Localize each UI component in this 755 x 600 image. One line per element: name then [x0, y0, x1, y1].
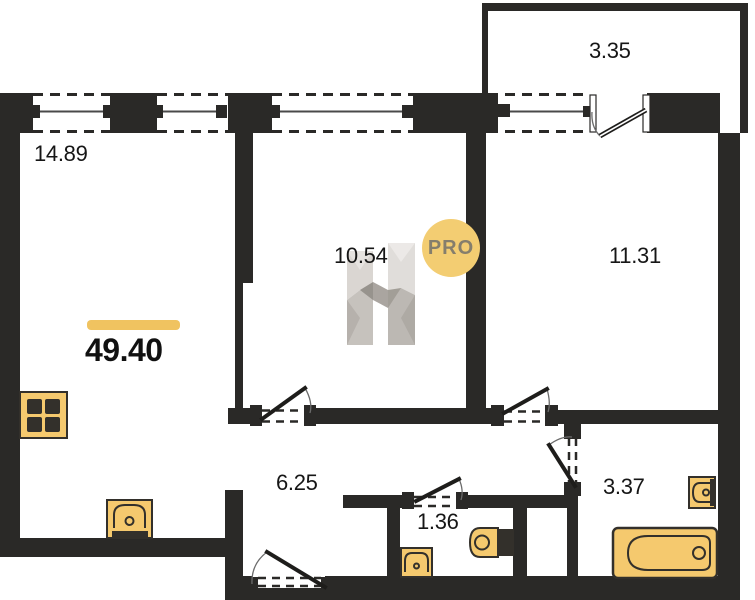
door-right-bedroom	[504, 389, 549, 422]
floor-plan: 14.89 10.54 11.31 3.35 6.25 1.36 3.37 49…	[0, 0, 755, 600]
pro-badge-label: PRO	[428, 237, 474, 260]
wall-segment	[413, 93, 498, 133]
wall-segment	[0, 538, 243, 557]
room-label-wc: 1.36	[417, 511, 459, 533]
door-bathroom	[549, 437, 576, 486]
balcony-wall	[740, 3, 748, 133]
room-label-living: 14.89	[34, 143, 88, 165]
door-balcony	[590, 95, 650, 136]
wc-sink-icon	[401, 548, 432, 577]
total-area-label: 49.40	[85, 334, 163, 366]
bathtub-icon	[613, 528, 717, 578]
balcony-wall	[482, 11, 488, 93]
kitchen-sink-icon	[107, 500, 152, 538]
room-label-bathroom: 3.37	[603, 476, 645, 498]
wall-segment	[228, 408, 252, 424]
wall-segment	[0, 93, 20, 557]
wall-segment	[235, 133, 253, 283]
wall-segment	[228, 93, 272, 133]
wall-segment	[513, 508, 527, 582]
total-area-divider	[87, 320, 180, 330]
wall-segment	[110, 93, 157, 133]
balcony-wall	[482, 3, 748, 11]
door-entrance	[252, 552, 325, 587]
room-label-balcony: 3.35	[589, 40, 631, 62]
floor-plan-drawing	[0, 0, 755, 600]
wall-segment	[556, 410, 718, 424]
room-label-bedroom-right: 11.31	[609, 245, 661, 267]
wall-segment	[0, 93, 33, 133]
wall-segment	[647, 93, 720, 133]
stove-icon	[20, 392, 67, 438]
wall-segment	[314, 408, 486, 424]
toilet-small-icon	[689, 477, 715, 508]
wall-segment	[343, 495, 403, 508]
pro-watermark-badge: PRO	[422, 219, 480, 277]
wall-segment	[466, 133, 486, 424]
toilet-icon	[470, 528, 514, 557]
door-wc	[414, 479, 462, 506]
door-middle-bedroom	[262, 388, 311, 422]
room-label-bedroom-middle: 10.54	[334, 245, 388, 267]
wall-segment	[225, 588, 740, 600]
wall-segment	[718, 133, 740, 600]
wall-segment	[468, 495, 578, 508]
room-label-hallway: 6.25	[276, 472, 318, 494]
wall-segment	[235, 283, 243, 408]
